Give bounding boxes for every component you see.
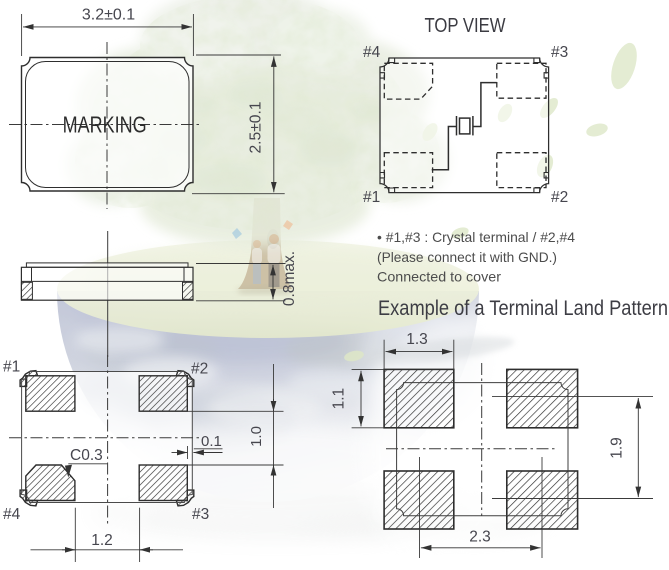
svg-text:(Please connect it with GND.): (Please connect it with GND.) [377, 249, 557, 265]
svg-text:#2: #2 [551, 189, 568, 206]
svg-text:0.8max.: 0.8max. [281, 251, 298, 306]
svg-text:#1: #1 [3, 359, 20, 376]
svg-text:3.2±0.1: 3.2±0.1 [82, 7, 135, 24]
svg-text:1.1: 1.1 [331, 388, 348, 410]
svg-text:#4: #4 [3, 506, 21, 523]
svg-text:2.5±0.1: 2.5±0.1 [248, 101, 265, 153]
svg-text:1.2: 1.2 [91, 532, 113, 549]
svg-text:Connected to cover: Connected to cover [377, 269, 501, 285]
svg-text:#2: #2 [191, 361, 208, 378]
svg-text:1.9: 1.9 [609, 437, 626, 459]
svg-text:• #1,#3 : Crystal terminal / #: • #1,#3 : Crystal terminal / #2,#4 [377, 229, 575, 245]
svg-text:MARKING: MARKING [63, 112, 147, 138]
svg-text:Example of a Terminal Land Pat: Example of a Terminal Land Pattern [378, 296, 668, 320]
svg-text:#3: #3 [551, 44, 568, 61]
svg-text:1.0: 1.0 [248, 426, 265, 447]
svg-text:C0.3: C0.3 [70, 447, 103, 464]
svg-text:TOP VIEW: TOP VIEW [425, 15, 506, 37]
svg-text:0.1: 0.1 [201, 433, 222, 450]
svg-text:#3: #3 [192, 506, 209, 523]
svg-text:2.3: 2.3 [469, 529, 491, 546]
svg-text:#4: #4 [363, 44, 381, 61]
svg-text:1.3: 1.3 [406, 331, 428, 348]
svg-text:#1: #1 [363, 189, 380, 206]
